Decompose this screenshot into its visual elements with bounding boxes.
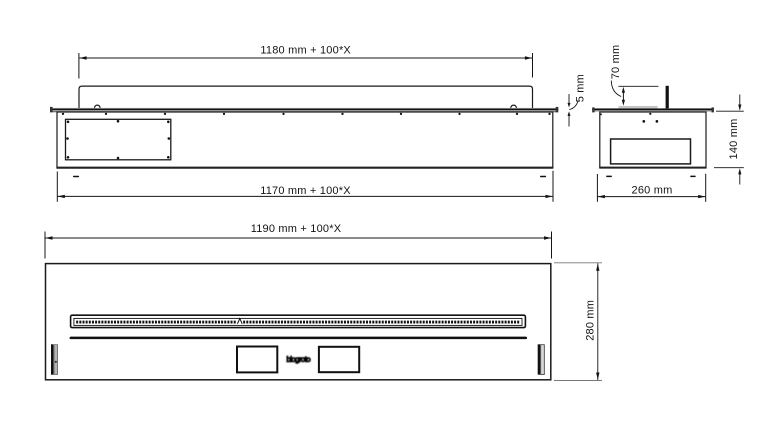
svg-text:280 mm: 280 mm (584, 300, 596, 341)
svg-text:260 mm: 260 mm (632, 185, 673, 197)
svg-text:1170 mm + 100*X: 1170 mm + 100*X (260, 185, 351, 197)
svg-text:biogroto: biogroto (286, 355, 311, 364)
svg-text:1190 mm + 100*X: 1190 mm + 100*X (251, 223, 342, 235)
svg-text:140 mm: 140 mm (728, 119, 740, 160)
svg-text:5 mm: 5 mm (575, 74, 587, 102)
svg-text:1180 mm + 100*X: 1180 mm + 100*X (260, 45, 351, 57)
svg-text:70 mm: 70 mm (610, 45, 622, 80)
